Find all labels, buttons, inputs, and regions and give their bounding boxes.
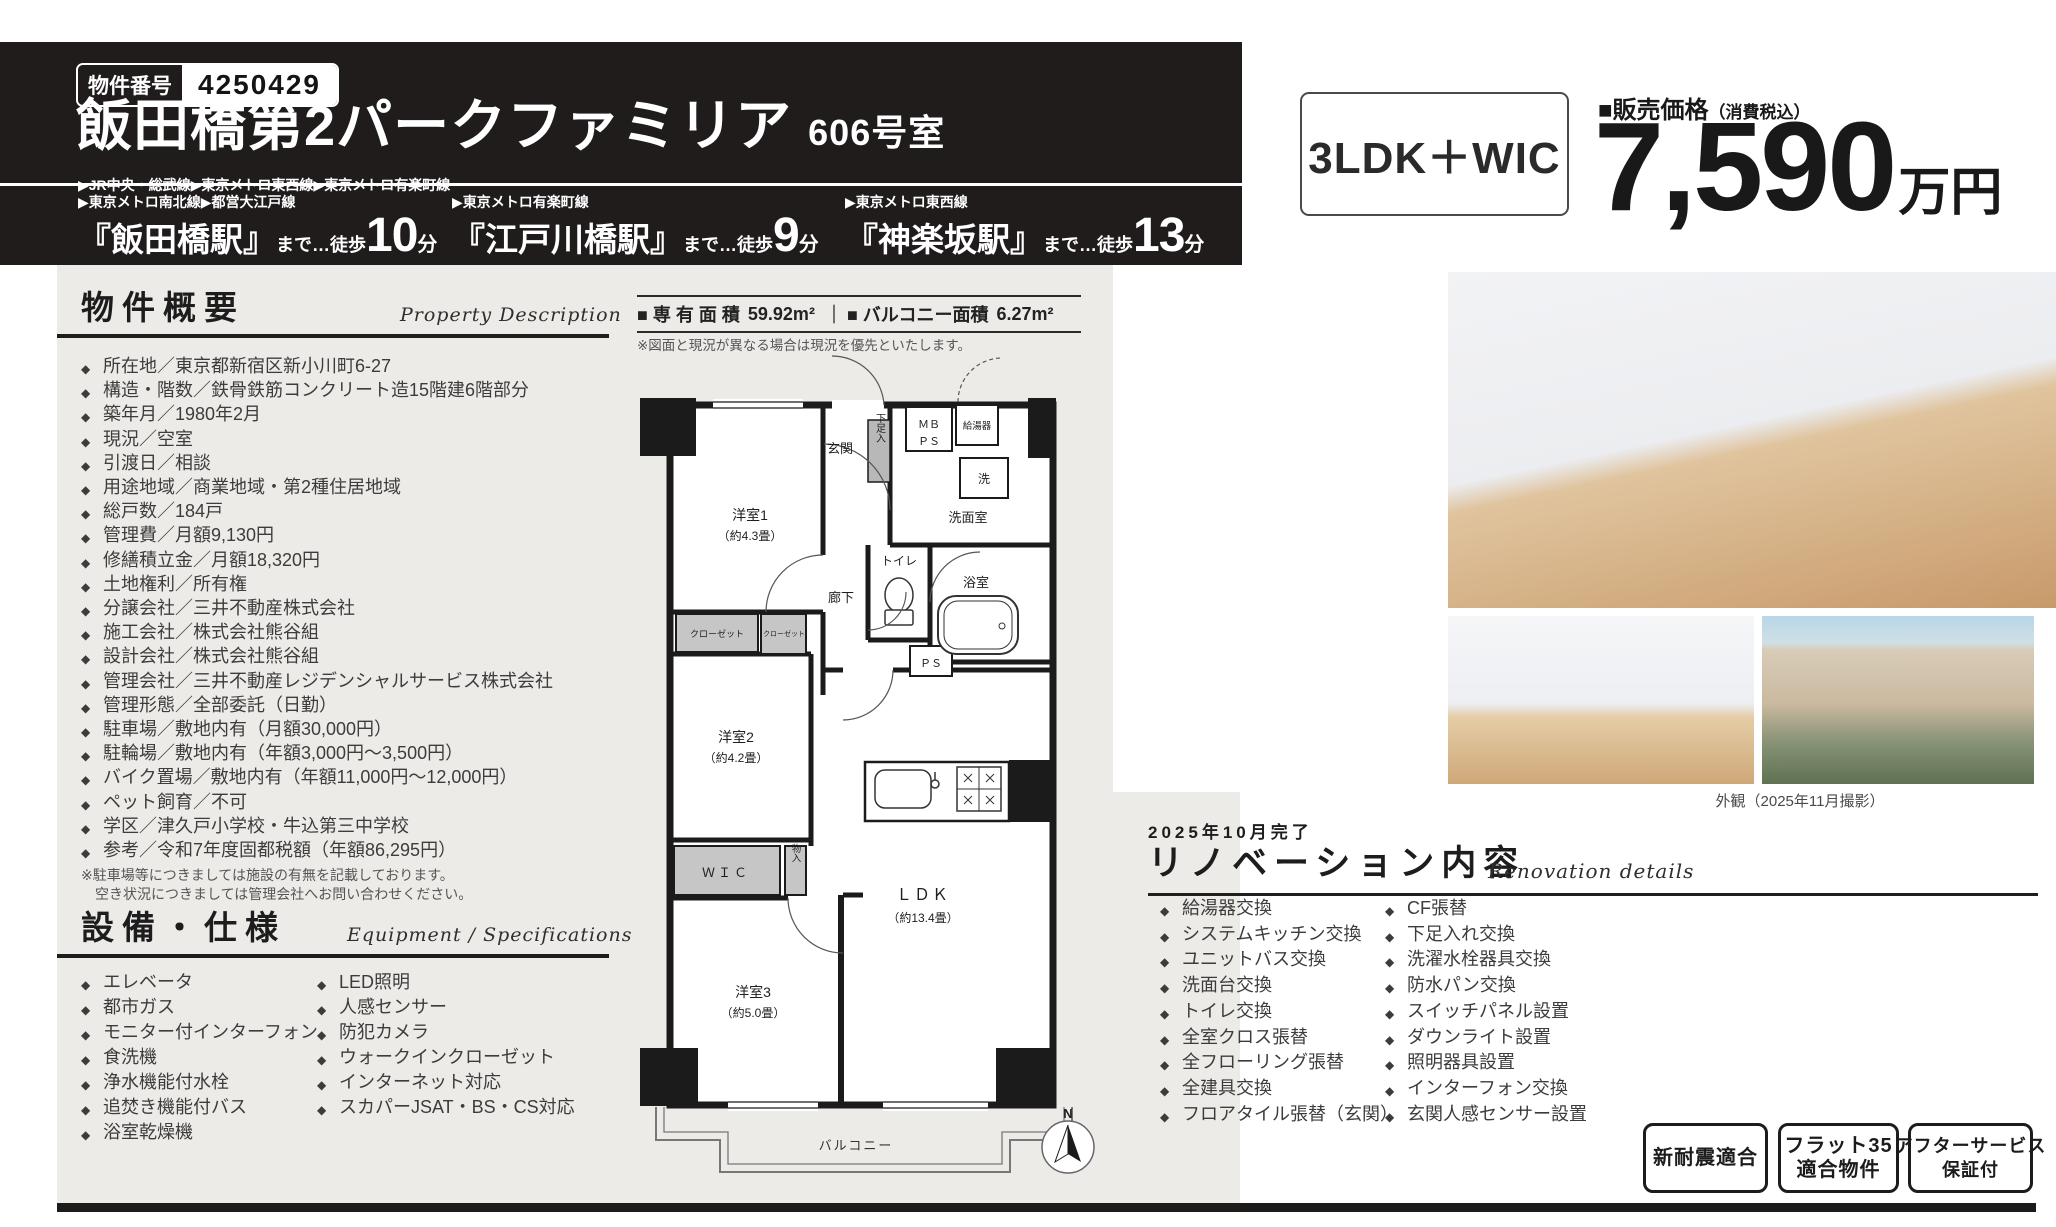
overview-item: 所在地／東京都新宿区新小川町6-27 [81, 354, 553, 378]
exclusive-area-label: ■ 専 有 面 積 [637, 301, 740, 327]
equipment-item: LED照明 [317, 970, 575, 995]
overview-item: ペット飼育／不可 [81, 790, 553, 814]
station-walk-row: 『飯田橋駅』 まで…徒歩 10 分 [78, 212, 450, 260]
exclusive-area-value: 59.92m² [748, 304, 815, 325]
station-name: 『飯田橋駅』 [78, 223, 276, 256]
equipment-item: インターネット対応 [317, 1070, 575, 1095]
overview-note-line1: ※駐車場等につきましては施設の有無を記載しております。 [81, 866, 472, 885]
equipment-subtitle: Equipment / Specifications [347, 924, 632, 946]
station-walk-text: まで…徒歩 [276, 236, 366, 254]
overview-item: 構造・階数／鉄骨鉄筋コンクリート造15階建6階部分 [81, 378, 553, 402]
equipment-list-right: LED照明 人感センサー 防犯カメラ ウォークインクローゼット インターネット対… [317, 970, 575, 1120]
overview-item: 管理会社／三井不動産レジデンシャルサービス株式会社 [81, 669, 553, 693]
station-walk-minutes: 10 [366, 212, 417, 260]
equipment-item: ウォークインクローゼット [317, 1045, 575, 1070]
station-access-band: ▶JR中央・総武線▶東京メトロ東西線▶東京メトロ有楽町線 ▶東京メトロ南北線▶都… [0, 186, 1242, 265]
station-walk-unit: 分 [1184, 235, 1204, 255]
renovation-item: ユニットバス交換 [1160, 947, 1398, 973]
equipment-item: 追焚き機能付バス [81, 1095, 318, 1120]
station-name: 『神楽坂駅』 [845, 223, 1043, 256]
room1-label: 洋室1 [732, 507, 768, 523]
equipment-item: スカパーJSAT・BS・CS対応 [317, 1095, 575, 1120]
balcony-area-value: 6.27m² [996, 304, 1053, 325]
station-walk-text: まで…徒歩 [1043, 236, 1133, 254]
badge-line: 適合物件 [1797, 1158, 1881, 1182]
kitchen-counter-icon [865, 762, 1009, 821]
room2-label: 洋室2 [718, 729, 754, 745]
badge-after-service: アフターサービス 保証付 [1908, 1123, 2033, 1193]
price-unit: 万円 [1898, 167, 2002, 219]
overview-item: 管理形態／全部委託（日勤） [81, 693, 553, 717]
renovation-item: スイッチパネル設置 [1385, 999, 1587, 1025]
overview-item: 参考／令和7年度固都税額（年額86,295円） [81, 838, 553, 862]
station-name: 『江戸川橋駅』 [452, 223, 683, 256]
ldk-size-label: （約13.4畳） [887, 910, 958, 925]
equipment-item: 防犯カメラ [317, 1020, 575, 1045]
equipment-item: 人感センサー [317, 995, 575, 1020]
equipment-list-left: エレベータ 都市ガス モニター付インターフォン 食洗機 浄水機能付水栓 追焚き機… [81, 970, 318, 1145]
room3-label: 洋室3 [735, 984, 771, 1000]
floor-layout-badge: 3LDK＋WIC [1300, 92, 1569, 216]
toilet-icon [885, 578, 913, 625]
equipment-item: エレベータ [81, 970, 318, 995]
renovation-item: 下足入れ交換 [1385, 922, 1587, 948]
equipment-section-header: 設備・仕様 Equipment / Specifications [57, 908, 609, 958]
station-walk-text: まで…徒歩 [683, 236, 773, 254]
overview-item: 土地権利／所有権 [81, 572, 553, 596]
mb-label: ＭＢ [918, 419, 940, 431]
washroom-label: 洗面室 [948, 510, 987, 525]
overview-item: 駐輪場／敷地内有（年額3,000円～3,500円） [81, 741, 553, 765]
balcony-label: バルコニー [819, 1138, 894, 1153]
header-title-band: 物件番号 4250429 飯田橋第2パークファミリア606号室 [0, 42, 1242, 183]
ldk-label: ＬＤＫ [896, 887, 950, 904]
overview-item: 施工会社／株式会社熊谷組 [81, 620, 553, 644]
station-walk-minutes: 9 [773, 212, 799, 260]
closet1-label: クローゼット [690, 628, 744, 639]
building-title: 飯田橋第2パークファミリア606号室 [76, 98, 945, 154]
overview-item: 現況／空室 [81, 427, 553, 451]
renovation-item: CF張替 [1385, 896, 1587, 922]
equipment-item: 都市ガス [81, 995, 318, 1020]
overview-item: バイク置場／敷地内有（年額11,000円～12,000円） [81, 765, 553, 789]
overview-note-line2: 空き状況につきましては管理会社へお問い合わせください。 [81, 885, 472, 904]
renovation-item: インターフォン交換 [1385, 1076, 1587, 1102]
overview-note: ※駐車場等につきましては施設の有無を記載しております。 空き状況につきましては管… [81, 866, 472, 904]
overview-item: 引渡日／相談 [81, 451, 553, 475]
renovation-subtitle: Renovation details [1488, 859, 1694, 883]
ps-top-label: ＰＳ [918, 436, 940, 448]
renovation-item: 全建具交換 [1160, 1076, 1398, 1102]
station-walk-minutes: 13 [1133, 212, 1184, 260]
overview-item: 分譲会社／三井不動産株式会社 [81, 596, 553, 620]
renovation-item: 全室クロス張替 [1160, 1025, 1398, 1051]
overview-item: 管理費／月額9,130円 [81, 523, 553, 547]
overview-subtitle: Property Description [400, 304, 622, 326]
overview-item: 総戸数／184戸 [81, 499, 553, 523]
footer-bar [57, 1203, 2036, 1212]
overview-item: 用途地域／商業地域・第2種住居地域 [81, 475, 553, 499]
badge-line: 新耐震適合 [1653, 1146, 1758, 1170]
price-row: 7,590 万円 [1594, 104, 2002, 230]
closet2-label: クローゼット [763, 629, 805, 638]
overview-item: 築年月／1980年2月 [81, 402, 553, 426]
station-walk-unit: 分 [417, 235, 437, 255]
badge-line: フラット35 [1784, 1134, 1892, 1158]
station-walk-unit: 分 [799, 235, 819, 255]
water-heater-label: 給湯器 [963, 420, 992, 432]
renovation-item: 洗面台交換 [1160, 973, 1398, 999]
ps-label: ＰＳ [920, 658, 942, 670]
renovation-item: 玄関人感センサー設置 [1385, 1102, 1587, 1128]
balcony-area-label: ■ バルコニー面積 [847, 301, 989, 327]
station-lines: ▶JR中央・総武線▶東京メトロ東西線▶東京メトロ有楽町線 [78, 177, 450, 194]
room2-size-label: （約4.2畳） [704, 750, 769, 765]
station-access-edogawabashi: ▶東京メトロ有楽町線 『江戸川橋駅』 まで…徒歩 9 分 [452, 194, 819, 260]
badge-line: 保証付 [1942, 1158, 1999, 1182]
station-lines: ▶東京メトロ有楽町線 [452, 194, 819, 211]
bath-label: 浴室 [963, 575, 989, 590]
overview-item: 設計会社／株式会社熊谷組 [81, 644, 553, 668]
renovation-list-right: CF張替 下足入れ交換 洗濯水栓器具交換 防水パン交換 スイッチパネル設置 ダウ… [1385, 896, 1587, 1127]
renovation-item: トイレ交換 [1160, 999, 1398, 1025]
room1-size-label: （約4.3畳） [718, 528, 783, 543]
badge-line: アフターサービス [1895, 1134, 2047, 1158]
washer-label: 洗 [978, 472, 990, 486]
equipment-item: 食洗機 [81, 1045, 318, 1070]
equipment-title: 設備・仕様 [81, 909, 286, 946]
overview-item: 学区／津久戸小学校・牛込第三中学校 [81, 814, 553, 838]
renovation-list-left: 給湯器交換 システムキッチン交換 ユニットバス交換 洗面台交換 トイレ交換 全室… [1160, 896, 1398, 1127]
toilet-label: トイレ [881, 554, 917, 568]
equipment-item: 浴室乾燥機 [81, 1120, 318, 1145]
photo-kitchen [1122, 272, 1440, 784]
renovation-item: 防水パン交換 [1385, 973, 1587, 999]
price-amount: 7,590 [1594, 104, 1894, 230]
renovation-section: 2025年10月完了 リノベーション内容 Renovation details … [1148, 818, 2038, 896]
badge-flat35: フラット35 適合物件 [1778, 1123, 1899, 1193]
renovation-item: 全フローリング張替 [1160, 1050, 1398, 1076]
area-divider: ｜ [825, 301, 843, 327]
renovation-section-header: リノベーション内容 Renovation details [1148, 845, 2038, 896]
flyer-page: 物件番号 4250429 飯田橋第2パークファミリア606号室 ▶JR中央・総武… [0, 0, 2056, 1227]
building-name: 飯田橋第2パークファミリア [76, 94, 792, 157]
renovation-item: 給湯器交換 [1160, 896, 1398, 922]
renovation-item: システムキッチン交換 [1160, 922, 1398, 948]
storage-label: 物入 [790, 843, 802, 863]
overview-item: 駐車場／敷地内有（月額30,000円） [81, 717, 553, 741]
renovation-completed-date: 2025年10月完了 [1148, 818, 2038, 843]
renovation-item: フロアタイル張替（玄関） [1160, 1102, 1398, 1128]
station-access-iidabashi: ▶JR中央・総武線▶東京メトロ東西線▶東京メトロ有楽町線 ▶東京メトロ南北線▶都… [78, 177, 450, 260]
floorplan-drawing: N 洋室1 （約4.3畳） 玄関 下足入 ＭＢ ＰＳ 給湯器 洗 洗面室 トイレ… [628, 350, 1100, 1198]
north-compass-icon: N [1042, 1106, 1094, 1173]
hallway-label: 廊下 [828, 590, 854, 605]
badge-new-earthquake-standard: 新耐震適合 [1643, 1123, 1768, 1193]
north-label: N [1063, 1106, 1072, 1121]
photo-living-room [1448, 272, 2056, 608]
photo-building-exterior [1762, 616, 2034, 784]
overview-title: 物件概要 [81, 289, 245, 326]
renovation-item: ダウンライト設置 [1385, 1025, 1587, 1051]
renovation-title: リノベーション内容 [1148, 844, 1525, 883]
station-access-kagurazaka: ▶東京メトロ東西線 『神楽坂駅』 まで…徒歩 13 分 [845, 194, 1204, 260]
overview-section-header: 物件概要 Property Description [57, 288, 609, 338]
renovation-item: 洗濯水栓器具交換 [1385, 947, 1587, 973]
station-walk-row: 『神楽坂駅』 まで…徒歩 13 分 [845, 212, 1204, 260]
area-info-bar: ■ 専 有 面 積 59.92m² ｜ ■ バルコニー面積 6.27m² [637, 295, 1081, 333]
shoe-box-label: 下足入 [874, 413, 886, 443]
overview-item: 修繕積立金／月額18,320円 [81, 548, 553, 572]
renovation-item: 照明器具設置 [1385, 1050, 1587, 1076]
equipment-item: 浄水機能付水栓 [81, 1070, 318, 1095]
room-number: 606号室 [808, 112, 945, 153]
equipment-item: モニター付インターフォン [81, 1020, 318, 1045]
station-walk-row: 『江戸川橋駅』 まで…徒歩 9 分 [452, 212, 819, 260]
entrance-label: 玄関 [827, 441, 853, 456]
wic-label: ＷＩＣ [702, 865, 750, 880]
photo-bedroom-window [1448, 616, 1754, 784]
overview-list: 所在地／東京都新宿区新小川町6-27 構造・階数／鉄骨鉄筋コンクリート造15階建… [81, 354, 553, 862]
room3-size-label: （約5.0畳） [721, 1005, 786, 1020]
exterior-photo-caption: 外観（2025年11月撮影） [1640, 790, 1960, 811]
bathtub-icon [938, 596, 1018, 654]
